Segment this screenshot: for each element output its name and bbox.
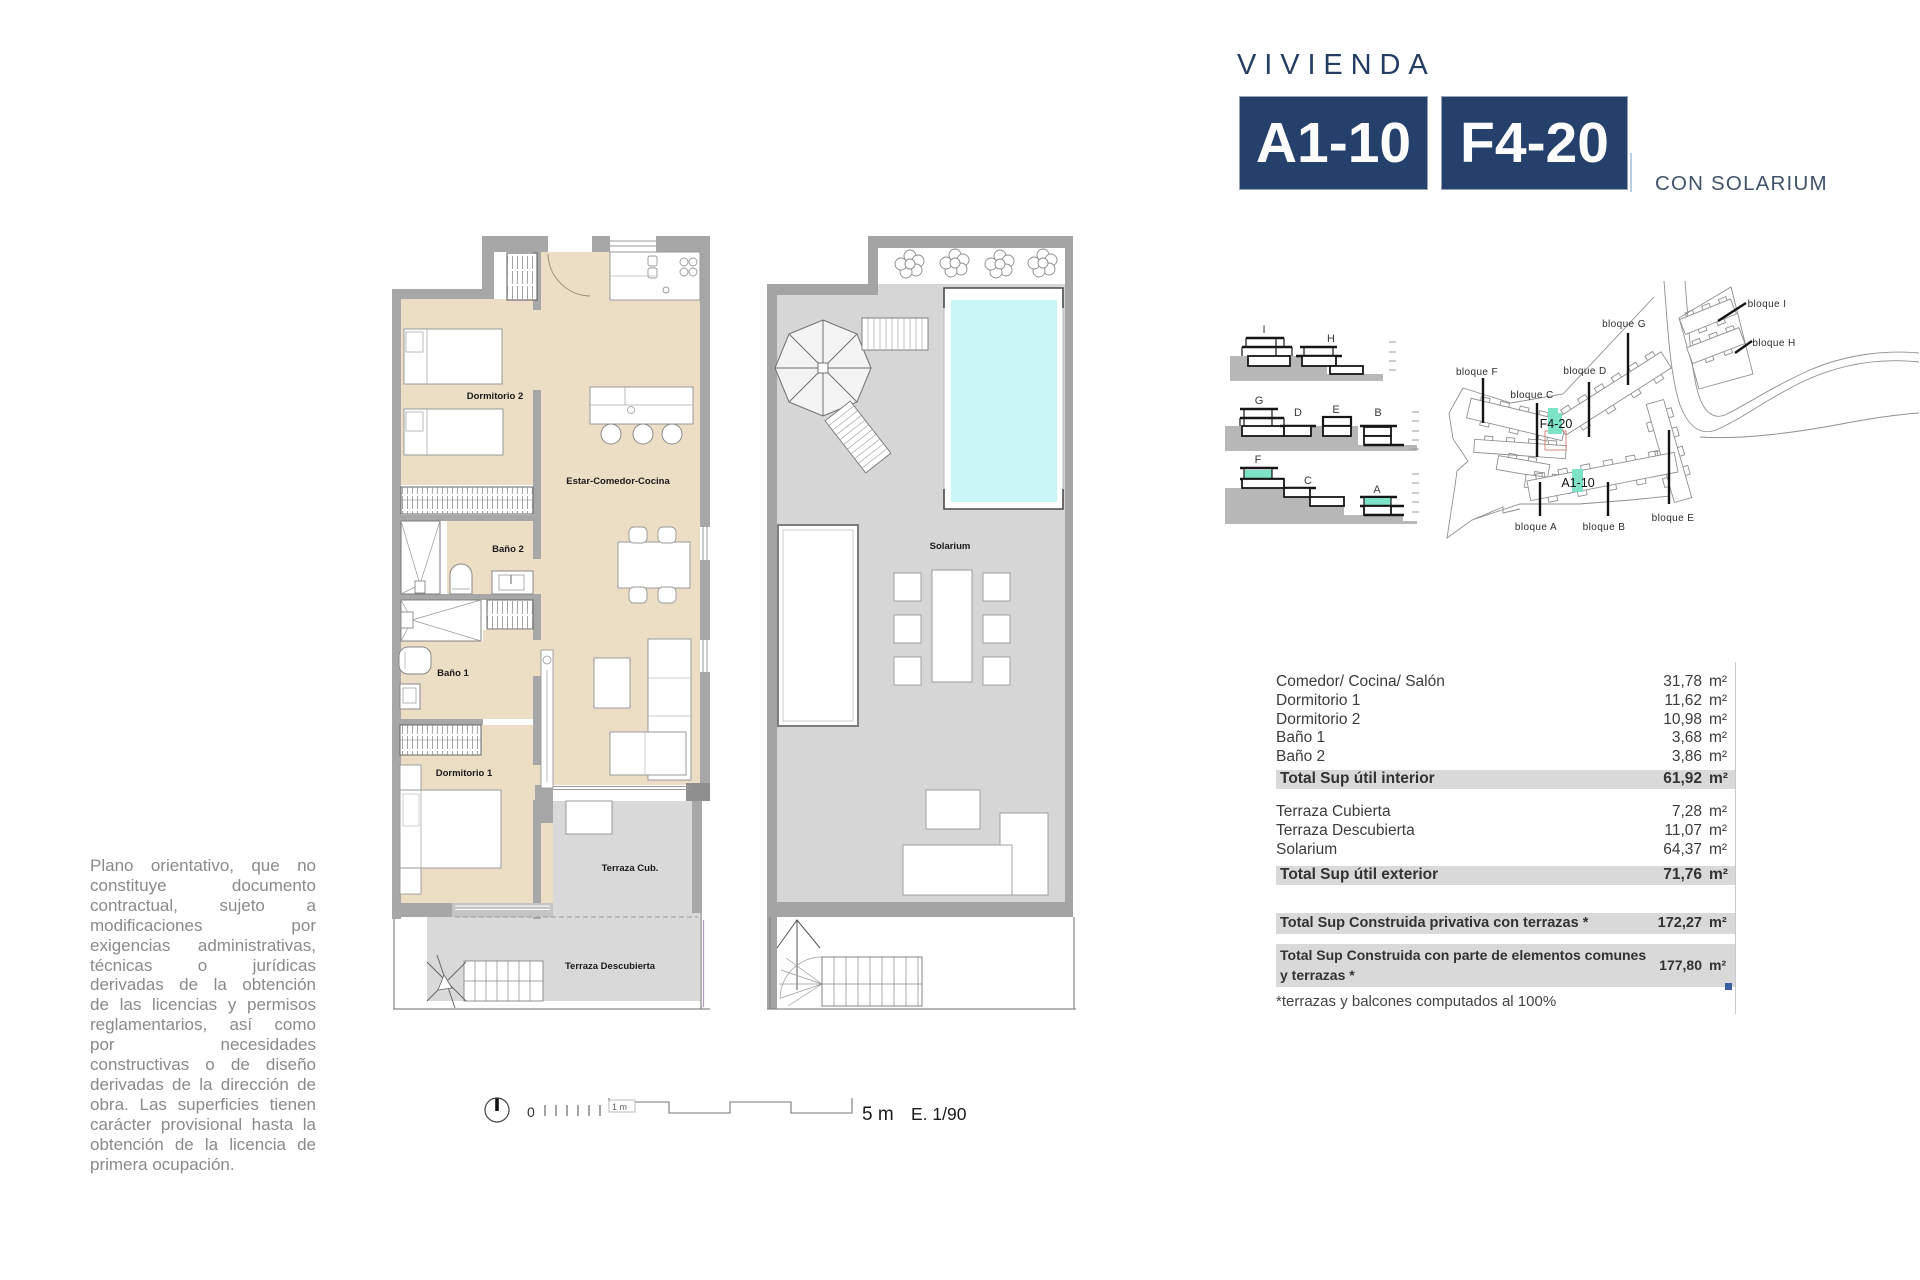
svg-text:C: C [1304, 475, 1312, 487]
svg-text:A: A [1373, 484, 1381, 496]
svg-text:bloque B: bloque B [1583, 522, 1626, 533]
svg-text:bloque D: bloque D [1563, 366, 1606, 377]
svg-text:A1-10: A1-10 [1561, 476, 1594, 490]
svg-text:bloque F: bloque F [1456, 367, 1498, 378]
svg-text:G: G [1255, 395, 1264, 407]
svg-text:F: F [1255, 454, 1262, 466]
svg-text:D: D [1294, 407, 1302, 419]
svg-text:Baño 2: Baño 2 [492, 544, 524, 555]
svg-text:B: B [1374, 407, 1381, 419]
svg-text:bloque G: bloque G [1602, 319, 1646, 330]
svg-text:Baño 1: Baño 1 [437, 668, 469, 679]
svg-text:Terraza Descubierta: Terraza Descubierta [565, 961, 656, 972]
svg-text:bloque I: bloque I [1748, 299, 1787, 310]
svg-text:1 m: 1 m [612, 1102, 627, 1112]
svg-text:Estar-Comedor-Cocina: Estar-Comedor-Cocina [566, 476, 670, 487]
svg-text:bloque E: bloque E [1652, 513, 1695, 524]
svg-text:E. 1/90: E. 1/90 [911, 1104, 967, 1124]
svg-text:H: H [1327, 333, 1335, 345]
svg-text:bloque H: bloque H [1752, 338, 1795, 349]
svg-text:F4-20: F4-20 [1540, 417, 1573, 431]
svg-text:Dormitorio 2: Dormitorio 2 [467, 391, 523, 402]
svg-text:Terraza Cub.: Terraza Cub. [602, 863, 659, 874]
svg-text:5 m: 5 m [862, 1104, 894, 1125]
svg-text:Solarium: Solarium [930, 541, 971, 552]
svg-text:Dormitorio 1: Dormitorio 1 [436, 768, 493, 779]
svg-text:bloque C: bloque C [1510, 390, 1553, 401]
svg-text:E: E [1332, 404, 1339, 416]
svg-text:bloque A: bloque A [1515, 522, 1557, 533]
svg-text:0: 0 [527, 1104, 535, 1120]
svg-text:I: I [1262, 324, 1265, 336]
